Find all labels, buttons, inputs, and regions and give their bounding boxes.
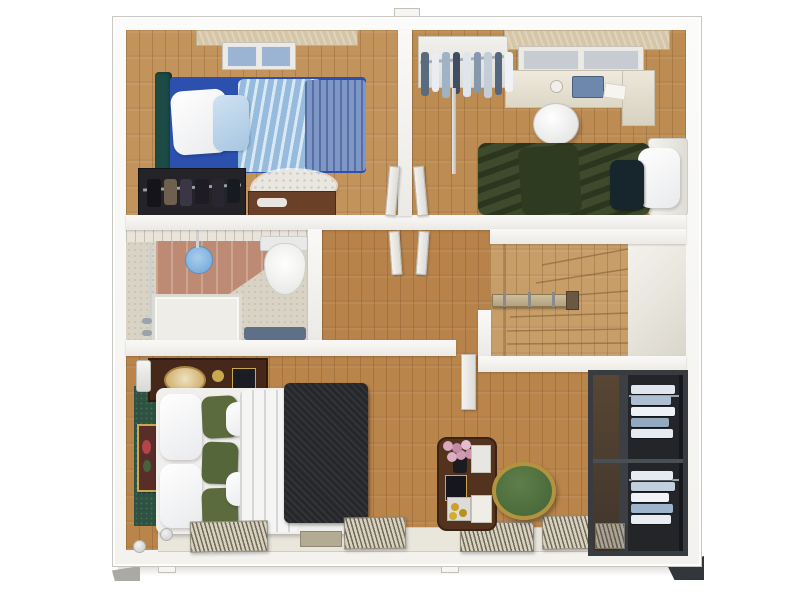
master-pillow-white xyxy=(160,464,202,528)
wall-stairwell-top xyxy=(490,229,686,244)
wall-stair-stub xyxy=(478,310,491,357)
gold-coins xyxy=(451,503,459,511)
rack-hanging-clothes xyxy=(421,52,513,98)
bed-post-knob xyxy=(133,540,146,553)
room-hallway-floor xyxy=(322,229,490,356)
platform-foot-left xyxy=(112,566,140,581)
stair-newel-post xyxy=(566,291,579,310)
artwork-detail xyxy=(143,460,151,472)
shower-glass-panel xyxy=(149,243,152,339)
wall-bathroom-hall xyxy=(308,229,322,341)
bedroom1-nightstand xyxy=(248,191,336,216)
radiator xyxy=(344,516,407,549)
desk-mug xyxy=(550,80,563,93)
window-pane xyxy=(261,46,291,67)
wall-bath-master xyxy=(126,340,456,356)
shower-head xyxy=(185,246,213,274)
nightstand-decor xyxy=(257,198,287,207)
dresser-book xyxy=(232,368,256,390)
stair-baluster xyxy=(528,292,531,307)
console-card-red xyxy=(471,495,492,523)
master-throw-charcoal xyxy=(284,383,368,523)
dresser-trinket xyxy=(212,370,224,382)
folded-clothes-lower xyxy=(631,471,675,524)
window-pane xyxy=(523,50,579,70)
console-cards xyxy=(471,445,491,473)
radiator xyxy=(190,520,269,552)
folded-clothes-upper xyxy=(631,385,675,438)
desk-chair xyxy=(533,103,579,145)
console-table xyxy=(437,437,497,531)
window-pane xyxy=(583,50,639,70)
master-bedroom-door xyxy=(461,354,476,410)
clothes-rack-pole xyxy=(452,88,456,174)
master-pillow-white xyxy=(160,394,202,460)
desk-papers xyxy=(603,83,627,101)
bedroom2-throw xyxy=(518,144,583,216)
stairwell-side-wall xyxy=(628,243,686,356)
stair-baluster xyxy=(552,292,555,307)
wardrobe-clothes xyxy=(147,179,240,207)
flower-vase xyxy=(453,453,467,473)
wall-bedrooms-hall xyxy=(126,215,686,230)
closet-right-panel xyxy=(679,375,688,551)
built-in-closet xyxy=(588,370,688,556)
wall-between-bedrooms xyxy=(398,30,412,216)
window-frame-detail xyxy=(300,531,342,547)
bedroom2-desk-return xyxy=(622,70,655,126)
bedroom1-window xyxy=(222,42,296,70)
shower-arm xyxy=(196,230,199,248)
shower-tray xyxy=(152,294,242,345)
bath-mat xyxy=(244,327,306,340)
pink-flowers xyxy=(443,441,453,451)
artwork-detail xyxy=(142,440,151,454)
bedroom2-window xyxy=(518,46,644,73)
closet-radiator xyxy=(595,523,625,549)
bedroom2-pillow-white xyxy=(638,148,680,208)
desk-laptop xyxy=(572,76,604,98)
shower-faucet xyxy=(142,318,152,324)
bed-post-knob xyxy=(160,528,173,541)
bedroom1-pillow-blue xyxy=(213,95,249,151)
bedroom2-pillow-dark xyxy=(610,160,644,210)
floorplan-canvas xyxy=(0,0,800,600)
closet-shelf xyxy=(593,459,688,463)
stair-baluster xyxy=(503,292,506,307)
bedroom1-duvet-denim xyxy=(305,80,366,171)
master-lamp xyxy=(136,360,151,392)
shower-faucet xyxy=(142,330,152,336)
window-pane xyxy=(227,46,257,67)
round-stool xyxy=(492,462,556,520)
bedroom1-wardrobe xyxy=(138,168,246,216)
